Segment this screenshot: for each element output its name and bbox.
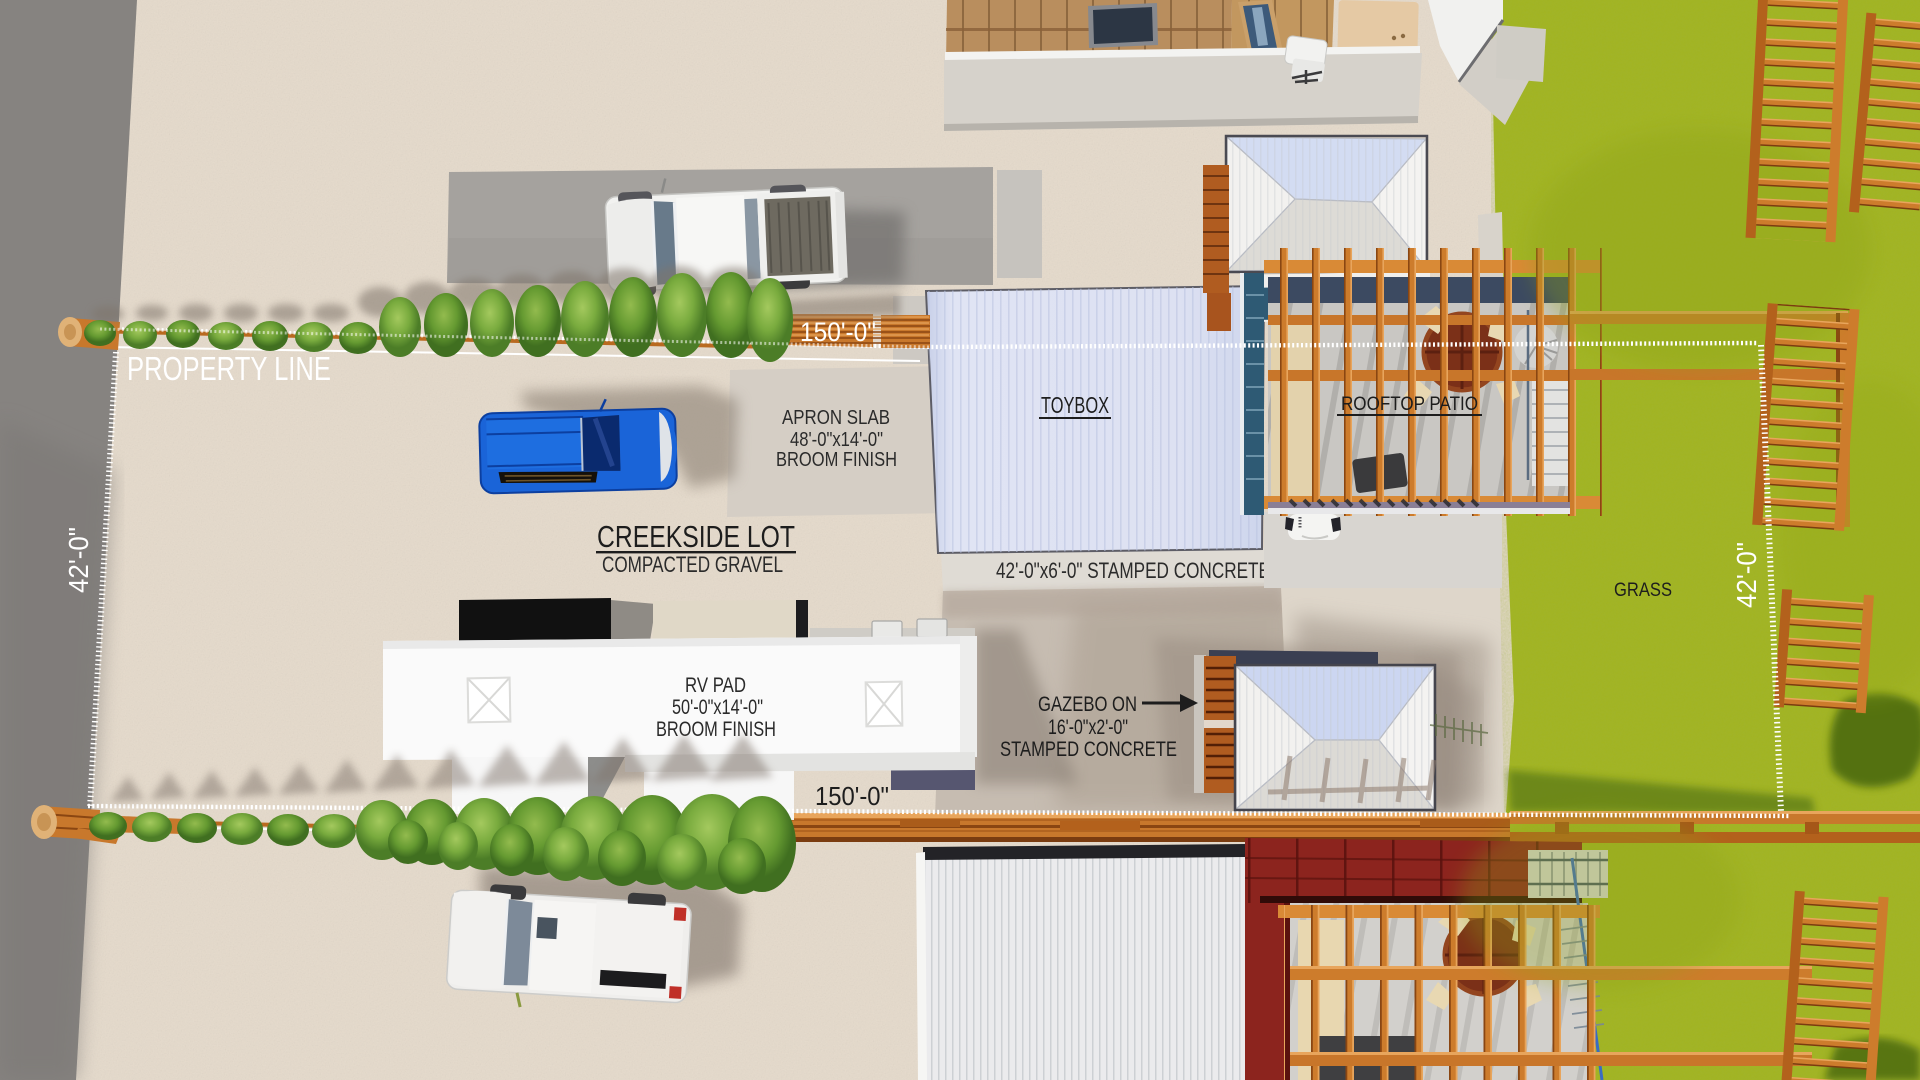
svg-text:STAMPED CONCRETE: STAMPED CONCRETE — [1000, 738, 1177, 761]
svg-text:GAZEBO ON: GAZEBO ON — [1038, 693, 1137, 716]
svg-text:CREEKSIDE LOT: CREEKSIDE LOT — [597, 519, 795, 554]
svg-text:RV PAD: RV PAD — [685, 674, 746, 697]
svg-text:APRON SLAB: APRON SLAB — [782, 406, 890, 429]
svg-text:GRASS: GRASS — [1614, 580, 1672, 601]
svg-text:42'-0": 42'-0" — [1731, 542, 1762, 608]
svg-text:COMPACTED GRAVEL: COMPACTED GRAVEL — [602, 552, 783, 577]
svg-text:16'-0"x2'-0": 16'-0"x2'-0" — [1048, 716, 1128, 739]
svg-text:150'-0": 150'-0" — [800, 317, 876, 347]
svg-text:42'-0": 42'-0" — [63, 527, 94, 593]
svg-text:150'-0": 150'-0" — [815, 781, 889, 811]
svg-text:TOYBOX: TOYBOX — [1041, 392, 1109, 418]
svg-text:50'-0"x14'-0": 50'-0"x14'-0" — [672, 696, 763, 719]
svg-text:BROOM FINISH: BROOM FINISH — [656, 718, 776, 741]
svg-text:ROOFTOP PATIO: ROOFTOP PATIO — [1341, 393, 1478, 415]
svg-text:BROOM FINISH: BROOM FINISH — [776, 448, 897, 471]
svg-text:PROPERTY LINE: PROPERTY LINE — [127, 350, 331, 387]
svg-text:42'-0"x6'-0" STAMPED CONCRETE: 42'-0"x6'-0" STAMPED CONCRETE — [996, 558, 1270, 583]
